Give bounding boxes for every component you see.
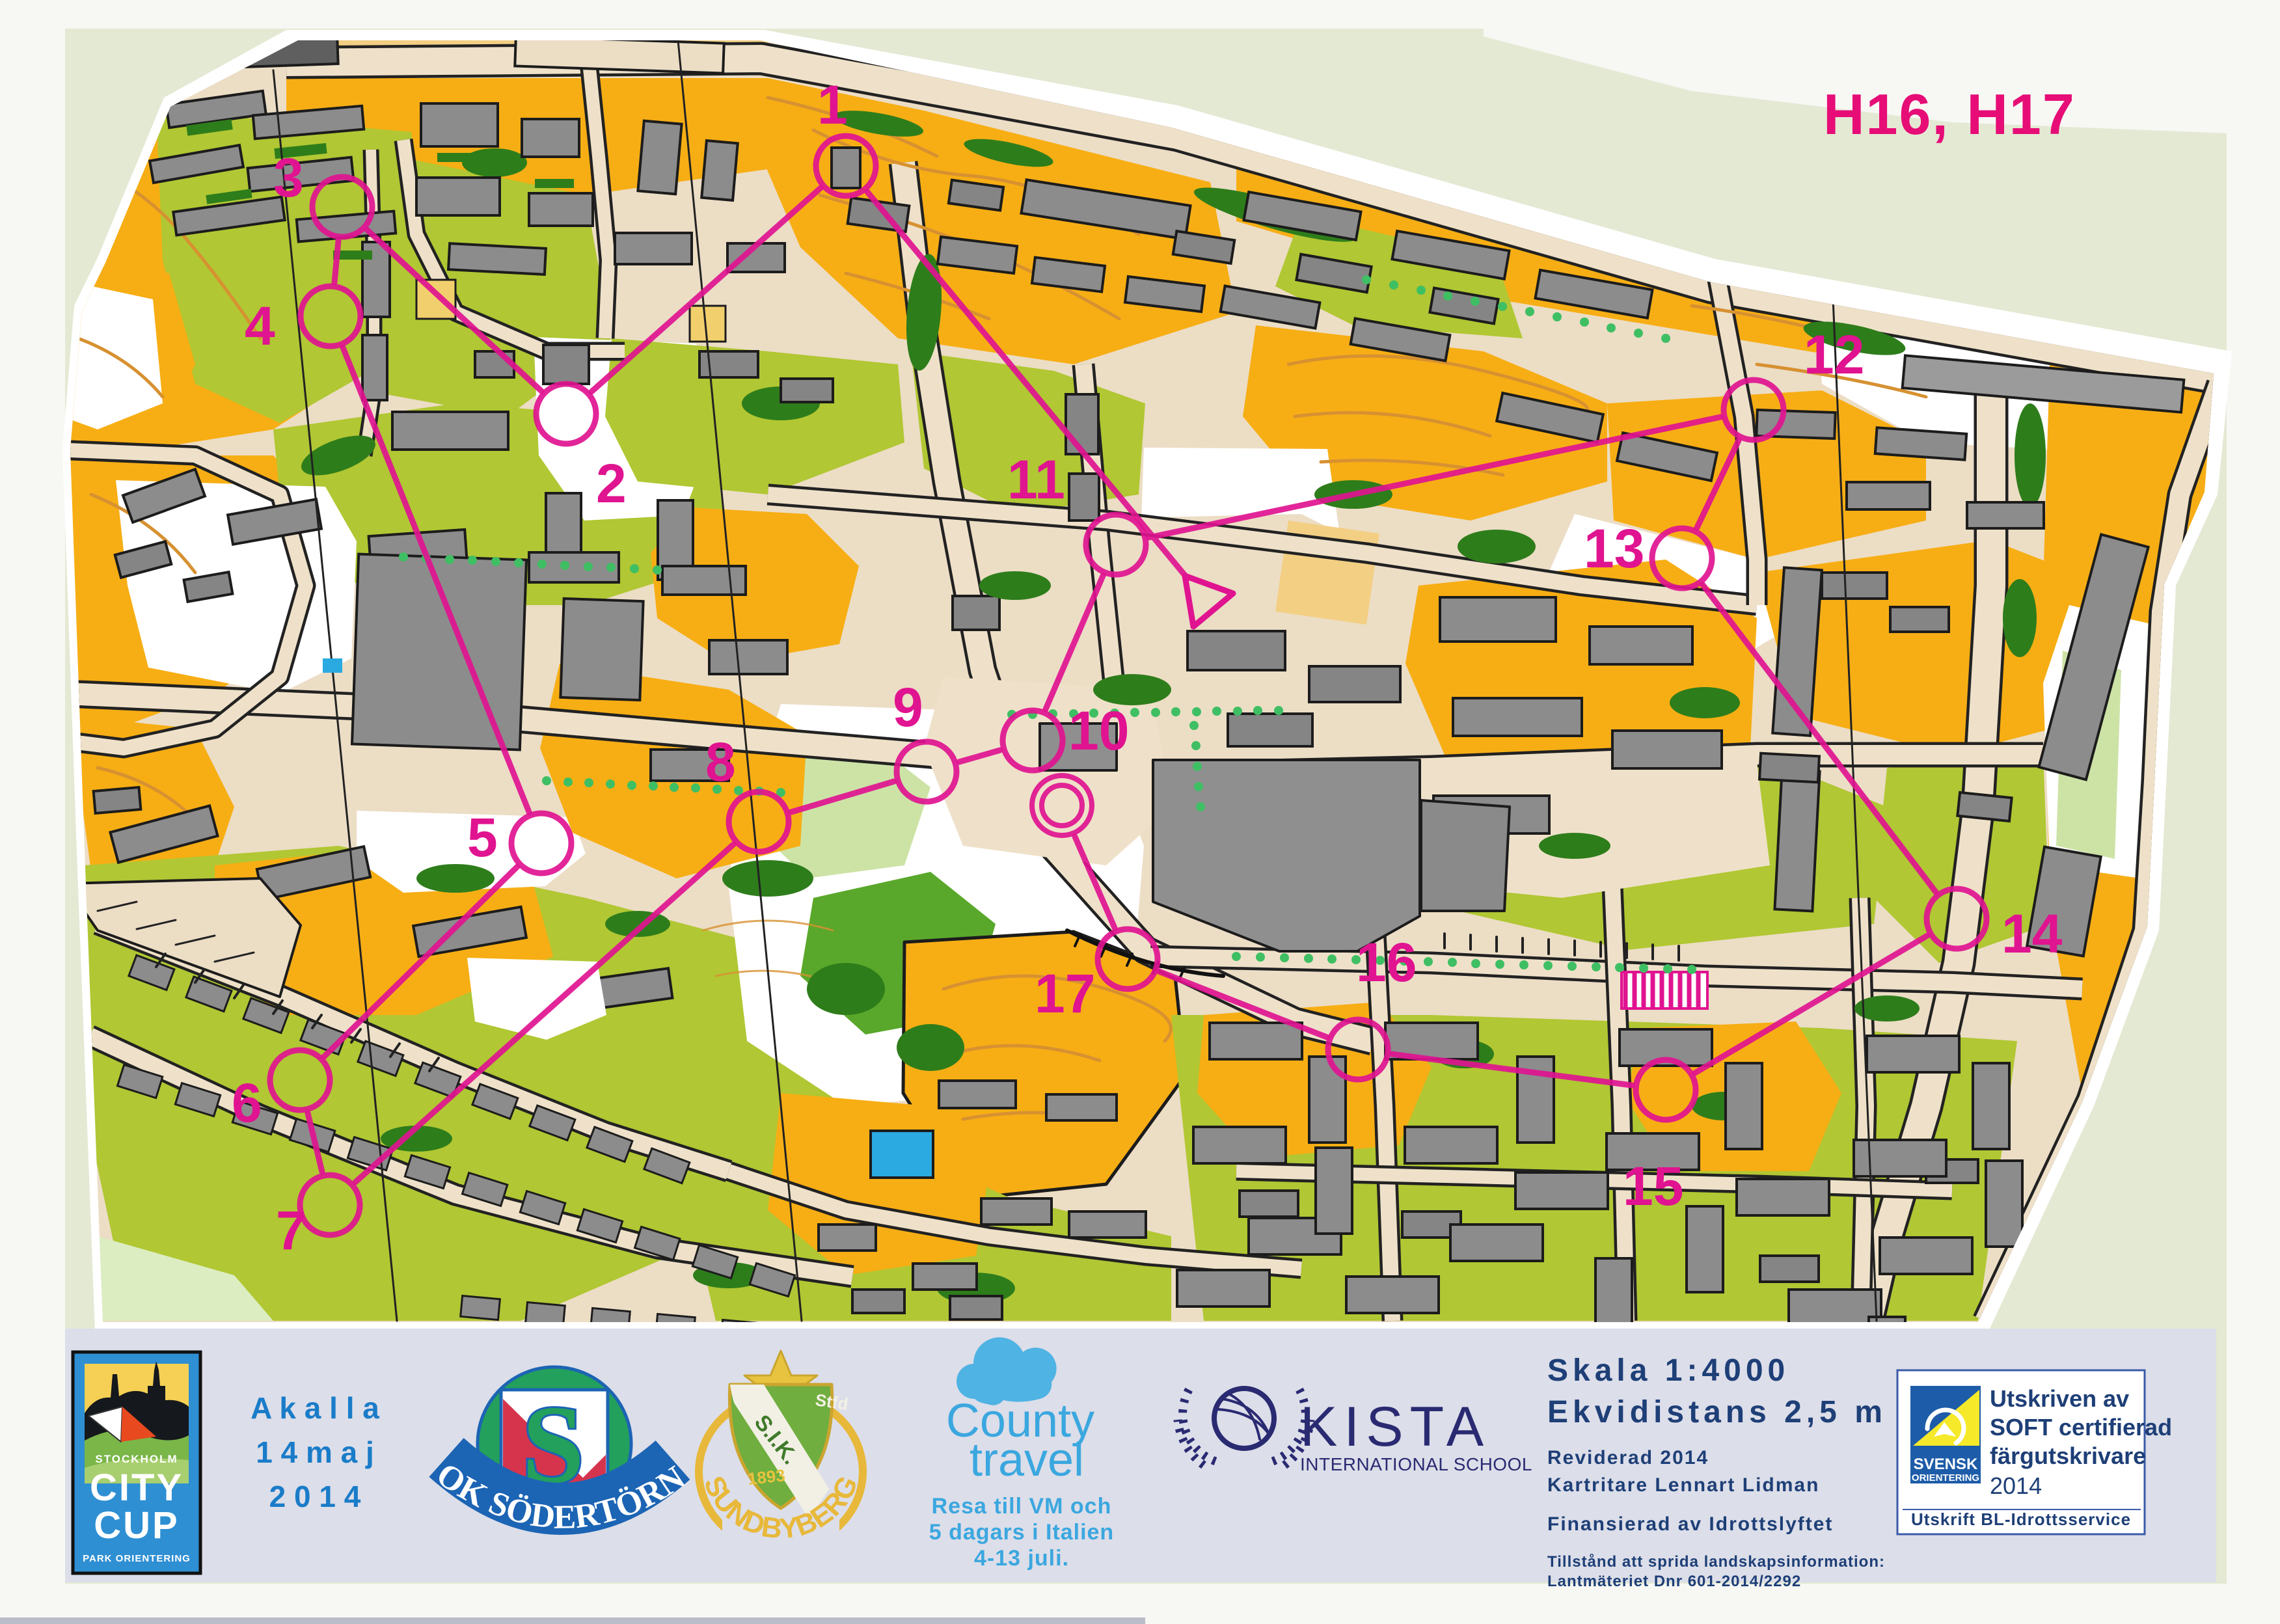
svg-text:Tillstånd att sprida landskaps: Tillstånd att sprida landskapsinformatio… [1547, 1553, 1885, 1571]
svg-text:12: 12 [1804, 324, 1864, 385]
svg-text:Resa till VM och: Resa till VM och [932, 1494, 1112, 1519]
svg-text:KISTA: KISTA [1300, 1396, 1490, 1458]
svg-text:Reviderad 2014: Reviderad 2014 [1547, 1447, 1709, 1468]
svg-text:SVENSK: SVENSK [1914, 1455, 1978, 1473]
svg-text:Ekvidistans 2,5 m: Ekvidistans 2,5 m [1547, 1395, 1887, 1429]
svg-text:Finansierad av Idrottslyftet: Finansierad av Idrottslyftet [1547, 1513, 1833, 1535]
svg-text:Lantmäteriet Dnr 601-2014/2292: Lantmäteriet Dnr 601-2014/2292 [1547, 1573, 1801, 1590]
svg-text:4-13 juli.: 4-13 juli. [974, 1546, 1069, 1571]
svg-text:SOFT certifierad: SOFT certifierad [1990, 1414, 2172, 1441]
svg-text:6: 6 [232, 1072, 262, 1133]
svg-text:15: 15 [1623, 1156, 1683, 1217]
svg-text:10: 10 [1068, 700, 1129, 761]
svg-text:14: 14 [2002, 903, 2063, 964]
svg-text:1 4 m a j: 1 4 m a j [256, 1435, 374, 1469]
svg-text:PARK ORIENTERING: PARK ORIENTERING [83, 1553, 191, 1564]
svg-text:16: 16 [1356, 932, 1417, 993]
svg-text:8: 8 [705, 731, 736, 792]
svg-text:3: 3 [273, 147, 304, 208]
svg-text:9: 9 [893, 677, 923, 738]
svg-text:17: 17 [1035, 963, 1095, 1024]
svg-text:färgutskrivare: färgutskrivare [1990, 1442, 2146, 1469]
svg-text:INTERNATIONAL SCHOOL: INTERNATIONAL SCHOOL [1300, 1454, 1532, 1474]
svg-text:A k a l l a: A k a l l a [251, 1391, 379, 1425]
svg-text:Kartritare Lennart Lidman: Kartritare Lennart Lidman [1547, 1474, 1819, 1496]
svg-text:5: 5 [467, 807, 498, 868]
svg-text:CUP: CUP [94, 1504, 179, 1547]
svg-text:travel: travel [970, 1434, 1084, 1486]
svg-text:2014: 2014 [1990, 1472, 2042, 1499]
svg-text:13: 13 [1584, 518, 1644, 579]
svg-text:7: 7 [276, 1200, 306, 1261]
svg-text:H16, H17: H16, H17 [1823, 82, 2076, 146]
svg-text:2: 2 [596, 453, 627, 514]
svg-text:Utskrift BL-Idrottsservice: Utskrift BL-Idrottsservice [1911, 1509, 2131, 1529]
svg-text:1893: 1893 [746, 1465, 786, 1489]
svg-text:ORIENTERING: ORIENTERING [1912, 1472, 1979, 1483]
svg-text:5 dagars i Italien: 5 dagars i Italien [929, 1520, 1114, 1545]
svg-text:1: 1 [817, 74, 848, 135]
svg-text:Utskriven av: Utskriven av [1990, 1385, 2129, 1412]
svg-text:11: 11 [1007, 449, 1065, 510]
svg-text:CITY: CITY [90, 1467, 183, 1509]
svg-text:Skala 1:4000: Skala 1:4000 [1547, 1353, 1789, 1388]
svg-text:2 0 1 4: 2 0 1 4 [269, 1480, 361, 1513]
svg-text:STOCKHOLM: STOCKHOLM [95, 1453, 178, 1465]
svg-text:4: 4 [245, 295, 275, 357]
